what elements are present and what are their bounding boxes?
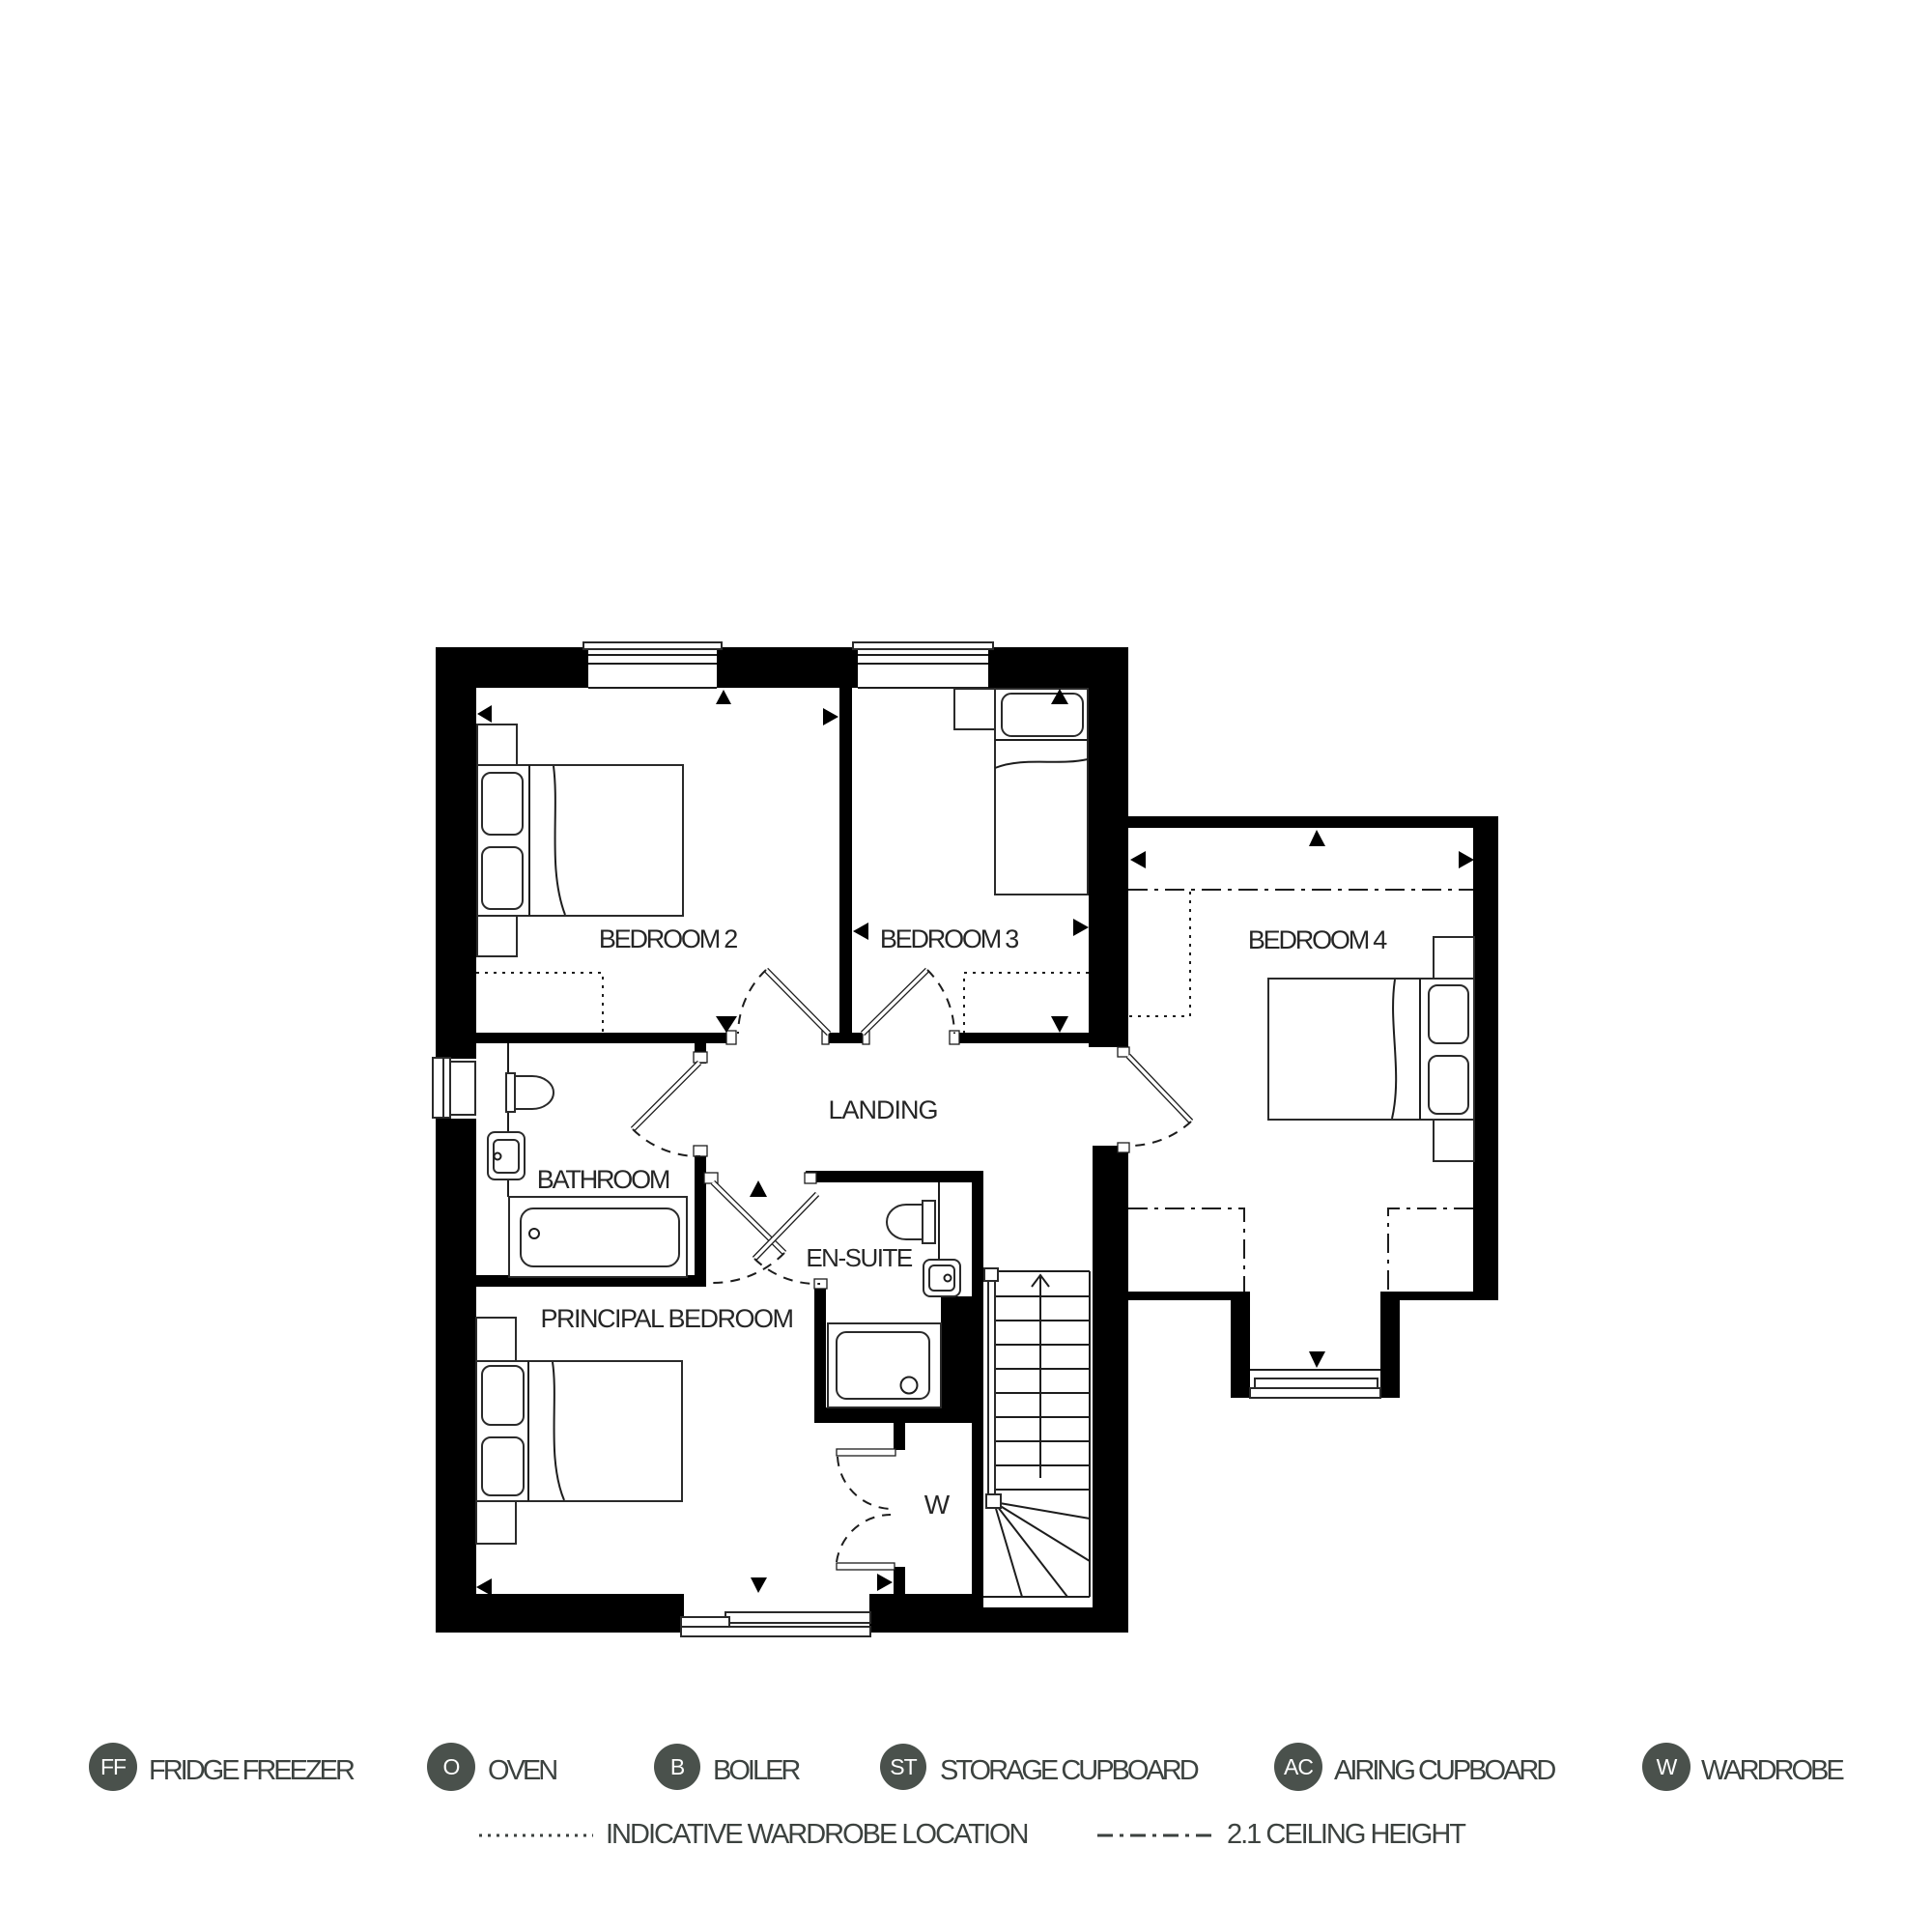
svg-text:AIRING CUPBOARD: AIRING CUPBOARD	[1334, 1755, 1555, 1786]
svg-text:EN-SUITE: EN-SUITE	[806, 1243, 913, 1272]
svg-text:BEDROOM 2: BEDROOM 2	[599, 924, 737, 953]
svg-text:INDICATIVE WARDROBE LOCATION: INDICATIVE WARDROBE LOCATION	[606, 1819, 1028, 1850]
svg-text:WARDROBE: WARDROBE	[1701, 1755, 1844, 1786]
svg-text:O: O	[443, 1754, 460, 1779]
svg-text:BEDROOM 4: BEDROOM 4	[1248, 925, 1387, 954]
svg-text:2.1 CEILING HEIGHT: 2.1 CEILING HEIGHT	[1227, 1819, 1466, 1850]
svg-text:B: B	[670, 1754, 685, 1779]
svg-text:BATHROOM: BATHROOM	[537, 1165, 669, 1194]
svg-text:W: W	[924, 1490, 951, 1520]
svg-text:ST: ST	[890, 1754, 917, 1779]
svg-text:FRIDGE FREEZER: FRIDGE FREEZER	[149, 1755, 355, 1786]
svg-text:W: W	[1657, 1754, 1678, 1779]
svg-text:LANDING: LANDING	[828, 1095, 937, 1124]
svg-text:PRINCIPAL BEDROOM: PRINCIPAL BEDROOM	[540, 1304, 792, 1333]
svg-text:AC: AC	[1284, 1754, 1313, 1779]
svg-text:BEDROOM 3: BEDROOM 3	[880, 924, 1018, 953]
svg-text:FF: FF	[100, 1754, 127, 1779]
svg-text:OVEN: OVEN	[488, 1755, 556, 1786]
svg-text:STORAGE CUPBOARD: STORAGE CUPBOARD	[940, 1755, 1199, 1786]
svg-text:BOILER: BOILER	[713, 1755, 800, 1786]
